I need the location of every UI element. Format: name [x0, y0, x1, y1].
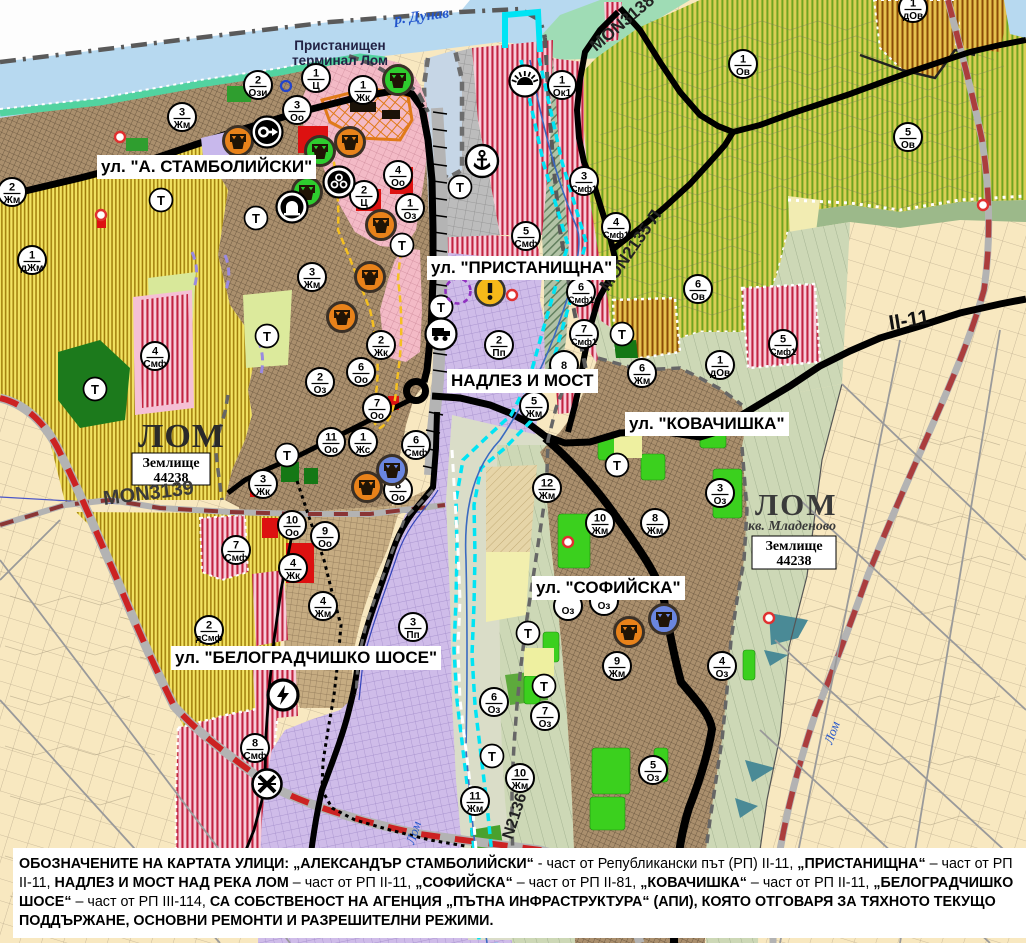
svg-text:Пп: Пп — [492, 348, 505, 359]
svg-text:1: 1 — [29, 250, 35, 262]
svg-text:Жм: Жм — [538, 491, 555, 502]
svg-text:Жм: Жм — [173, 120, 190, 131]
svg-text:1: 1 — [360, 432, 366, 444]
svg-text:5: 5 — [650, 760, 656, 772]
svg-text:2: 2 — [317, 372, 323, 384]
svg-text:Ов: Ов — [736, 67, 750, 78]
svg-text:Смф: Смф — [514, 238, 537, 250]
svg-text:Жм: Жм — [511, 781, 528, 792]
svg-text:3: 3 — [717, 483, 723, 495]
svg-text:Т: Т — [524, 626, 532, 641]
svg-text:Оз: Оз — [647, 773, 660, 784]
svg-text:терминал Лом: терминал Лом — [292, 53, 388, 68]
svg-text:4: 4 — [613, 217, 620, 229]
svg-text:Смф: Смф — [243, 750, 266, 762]
svg-text:Смф: Смф — [224, 552, 247, 564]
svg-text:Оз: Оз — [404, 211, 417, 222]
svg-text:Жм: Жм — [303, 280, 320, 291]
svg-text:Жм: Жм — [3, 195, 20, 206]
svg-text:1: 1 — [559, 75, 565, 87]
svg-text:Т: Т — [437, 300, 445, 315]
svg-text:Смф1: Смф1 — [568, 295, 594, 305]
svg-text:Т: Т — [157, 193, 165, 208]
svg-text:1: 1 — [740, 54, 746, 66]
svg-text:Смф1: Смф1 — [603, 230, 629, 240]
svg-text:4: 4 — [152, 346, 159, 358]
svg-text:5: 5 — [780, 334, 786, 346]
svg-text:Оз: Оз — [539, 719, 552, 730]
svg-text:Пп: Пп — [406, 630, 419, 641]
svg-text:2: 2 — [496, 335, 502, 347]
svg-text:Смф1: Смф1 — [571, 184, 597, 194]
svg-text:10: 10 — [594, 513, 606, 525]
svg-text:9: 9 — [322, 526, 328, 538]
svg-text:дСмф: дСмф — [196, 633, 223, 643]
svg-text:Т: Т — [252, 211, 260, 226]
svg-text:3: 3 — [309, 267, 315, 279]
svg-text:6: 6 — [639, 363, 645, 375]
svg-text:44238: 44238 — [777, 554, 812, 569]
svg-text:Оз: Оз — [562, 606, 575, 617]
svg-text:Оо: Оо — [354, 375, 368, 386]
svg-text:9: 9 — [614, 656, 620, 668]
svg-text:Т: Т — [398, 238, 406, 253]
svg-text:Т: Т — [91, 382, 99, 397]
svg-text:Ов: Ов — [691, 292, 705, 303]
svg-text:1: 1 — [910, 0, 916, 10]
svg-text:Т: Т — [263, 329, 271, 344]
svg-text:3: 3 — [260, 474, 266, 486]
svg-text:Жк: Жк — [373, 348, 389, 359]
svg-text:Оо: Оо — [391, 178, 405, 189]
svg-text:Оо: Оо — [391, 493, 405, 504]
svg-text:Оо: Оо — [290, 113, 304, 124]
svg-text:Ц: Ц — [360, 198, 368, 209]
svg-text:7: 7 — [581, 324, 587, 336]
svg-text:Жм: Жм — [591, 526, 608, 537]
svg-text:3: 3 — [294, 100, 300, 112]
svg-text:6: 6 — [695, 279, 701, 291]
svg-text:6: 6 — [413, 435, 419, 447]
svg-text:Ози: Ози — [249, 88, 268, 99]
svg-text:Жк: Жк — [355, 93, 371, 104]
svg-text:Жм: Жм — [608, 669, 625, 680]
svg-text:Пристанищен: Пристанищен — [294, 38, 385, 53]
svg-text:Т: Т — [618, 327, 626, 342]
svg-text:Оз: Оз — [598, 601, 611, 612]
svg-text:Жк: Жк — [255, 487, 271, 498]
svg-text:Т: Т — [456, 180, 464, 195]
svg-text:Оз: Оз — [714, 496, 727, 507]
svg-text:Оо: Оо — [285, 528, 299, 539]
svg-text:7: 7 — [542, 706, 548, 718]
svg-text:12: 12 — [541, 478, 553, 490]
svg-text:4: 4 — [395, 165, 402, 177]
svg-text:3: 3 — [179, 107, 185, 119]
svg-text:Оз: Оз — [488, 705, 501, 716]
svg-text:Жс: Жс — [355, 445, 371, 456]
svg-text:Смф1: Смф1 — [571, 337, 597, 347]
svg-text:Т: Т — [613, 458, 621, 473]
svg-text:6: 6 — [358, 362, 364, 374]
svg-text:Жк: Жк — [285, 571, 301, 582]
svg-text:Оз: Оз — [716, 669, 729, 680]
svg-text:5: 5 — [531, 396, 537, 408]
svg-text:Смф: Смф — [143, 358, 166, 370]
svg-text:Жм: Жм — [633, 376, 650, 387]
svg-text:8: 8 — [652, 513, 658, 525]
svg-text:8: 8 — [252, 738, 258, 750]
svg-text:ЛОМ: ЛОМ — [755, 487, 837, 522]
svg-text:7: 7 — [374, 398, 380, 410]
svg-text:6: 6 — [578, 282, 584, 294]
svg-text:1: 1 — [360, 80, 366, 92]
svg-text:3: 3 — [410, 617, 416, 629]
svg-text:Смф1: Смф1 — [770, 347, 796, 357]
svg-text:11: 11 — [469, 791, 481, 803]
svg-text:6: 6 — [491, 692, 497, 704]
svg-text:3: 3 — [581, 171, 587, 183]
svg-text:Оо: Оо — [318, 539, 332, 550]
svg-text:Оз: Оз — [314, 385, 327, 396]
svg-text:Жм: Жм — [646, 526, 663, 537]
svg-text:ЛОМ: ЛОМ — [138, 418, 225, 455]
svg-text:2: 2 — [361, 185, 367, 197]
svg-text:4: 4 — [290, 558, 297, 570]
svg-text:Ц: Ц — [312, 81, 320, 92]
svg-text:10: 10 — [514, 768, 526, 780]
svg-text:5: 5 — [905, 127, 911, 139]
svg-text:Т: Т — [283, 448, 291, 463]
svg-text:10: 10 — [286, 515, 298, 527]
svg-text:Землище: Землище — [765, 539, 822, 554]
svg-text:4: 4 — [320, 596, 327, 608]
svg-text:7: 7 — [233, 540, 239, 552]
svg-text:4: 4 — [719, 656, 726, 668]
svg-text:Смф: Смф — [404, 447, 427, 459]
svg-text:1: 1 — [313, 68, 319, 80]
svg-text:Т: Т — [488, 749, 496, 764]
svg-text:1: 1 — [717, 355, 723, 367]
svg-text:5: 5 — [523, 226, 529, 238]
svg-text:2: 2 — [378, 335, 384, 347]
svg-text:дОв: дОв — [710, 368, 730, 379]
svg-text:2: 2 — [9, 182, 15, 194]
svg-text:дОв: дОв — [903, 11, 923, 22]
svg-text:Оо: Оо — [324, 445, 338, 456]
svg-text:Землище: Землище — [142, 456, 199, 471]
svg-text:2: 2 — [206, 620, 212, 632]
svg-text:2: 2 — [255, 75, 261, 87]
svg-text:Ов: Ов — [901, 140, 915, 151]
svg-text:Т: Т — [540, 679, 548, 694]
svg-text:Жм: Жм — [466, 804, 483, 815]
svg-text:Оо: Оо — [370, 411, 384, 422]
svg-text:Жм: Жм — [314, 609, 331, 620]
svg-text:Жм: Жм — [525, 409, 542, 420]
svg-text:кв. Младеново: кв. Младеново — [748, 519, 836, 534]
svg-text:11: 11 — [325, 432, 337, 444]
svg-text:1: 1 — [407, 198, 413, 210]
svg-text:дЖм: дЖм — [21, 263, 44, 274]
svg-text:Ок1: Ок1 — [553, 88, 572, 99]
